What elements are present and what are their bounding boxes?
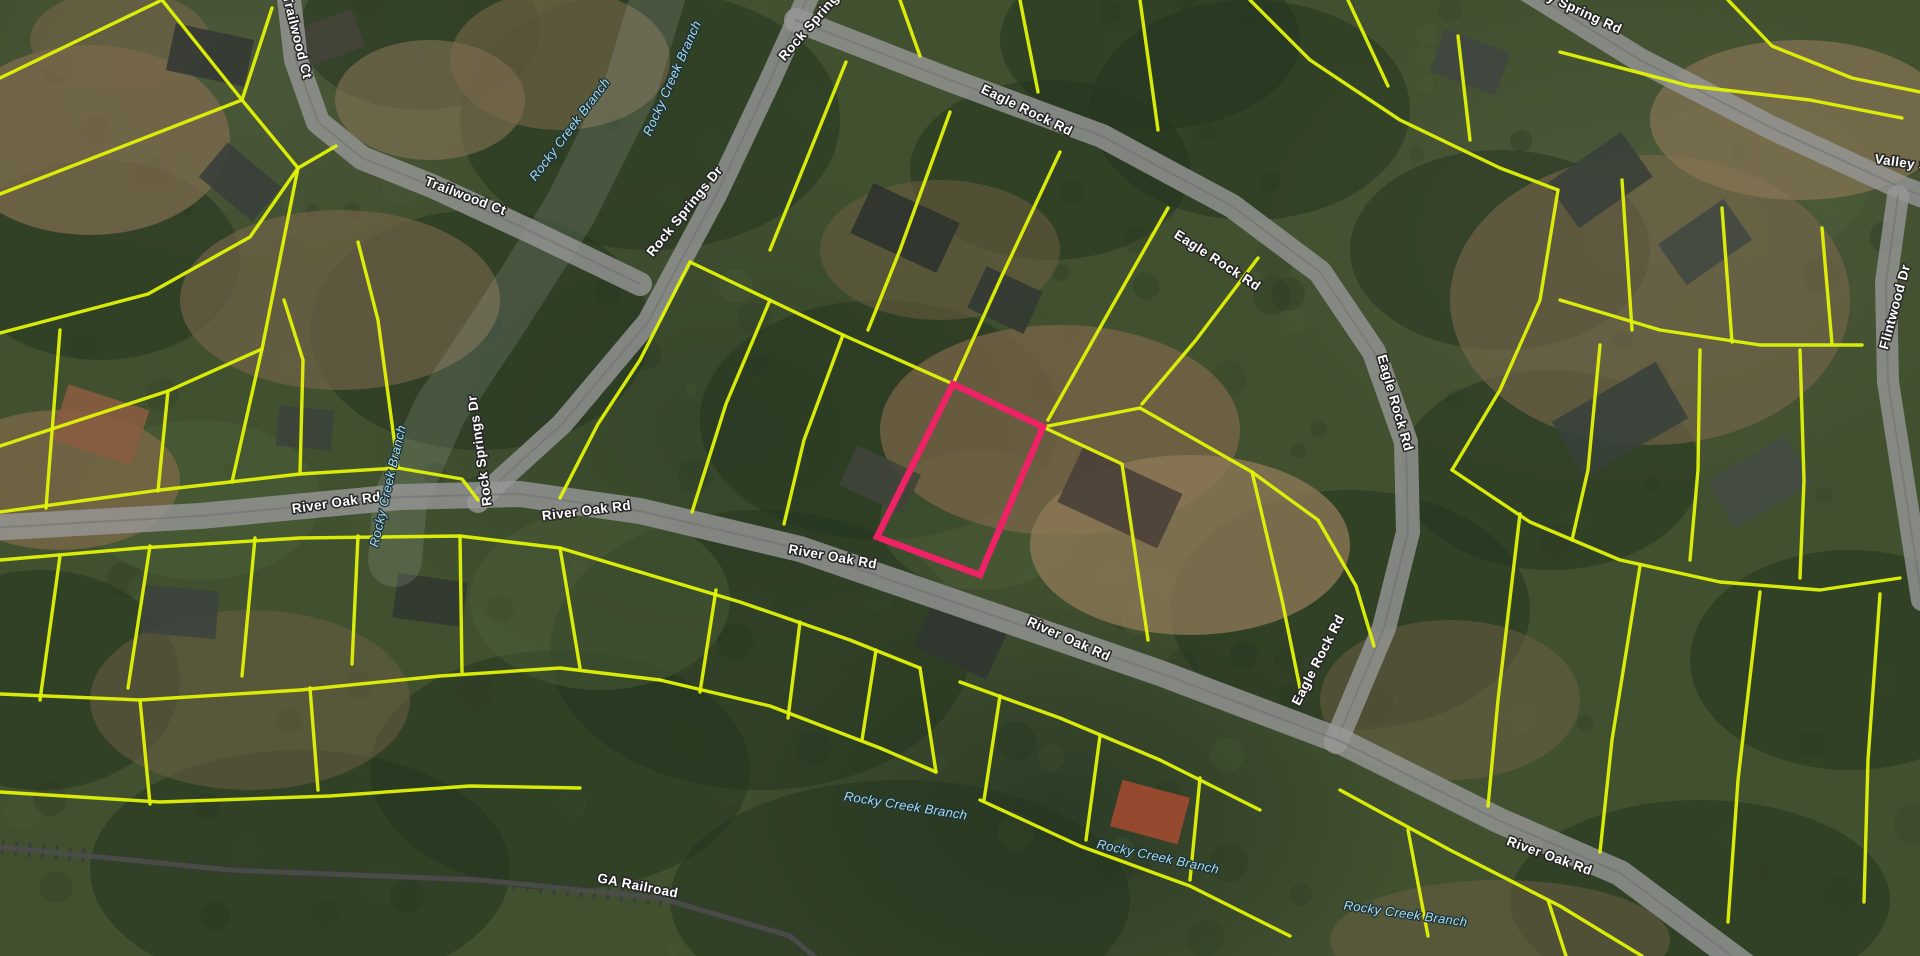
tree-texture-blob [1415, 24, 1436, 45]
tree-texture-blob [719, 269, 753, 303]
tree-texture-blob [1311, 421, 1328, 438]
tree-texture-blob [685, 383, 698, 396]
tree-texture-blob [1409, 146, 1425, 162]
tree-texture-blob [996, 721, 1036, 761]
parcel-map-svg: Trailwood CtTrailwood CtRock SpringRock … [0, 0, 1920, 956]
tree-texture-blob [1132, 272, 1159, 299]
tree-texture-blob [1290, 884, 1312, 906]
grass-patch [470, 510, 730, 690]
tree-texture-blob [1210, 738, 1244, 772]
house-roof [1429, 29, 1510, 95]
tree-texture-blob [1510, 130, 1532, 152]
parcel-boundary [1086, 736, 1100, 840]
house-roof [276, 406, 334, 451]
house-roof [1707, 436, 1812, 529]
parcel-boundary [460, 536, 462, 672]
tree-texture-blob [1291, 443, 1307, 459]
parcel-boundary [900, 0, 920, 56]
house-roof [141, 585, 220, 639]
forest-patch [370, 650, 750, 890]
tree-texture-blob [1577, 715, 1593, 731]
tree-texture-blob [40, 871, 73, 904]
map-canvas[interactable]: Trailwood CtTrailwood CtRock SpringRock … [0, 0, 1920, 956]
tree-texture-blob [1187, 919, 1225, 956]
tree-texture-blob [1038, 745, 1064, 771]
road-label: Eagle Rock Rd [1172, 227, 1264, 294]
parcel-boundary [298, 146, 336, 168]
tree-texture-blob [1893, 804, 1920, 844]
tree-texture-blob [1417, 76, 1433, 92]
tree-texture-blob [1438, 0, 1462, 21]
tree-texture-blob [1816, 487, 1833, 504]
tree-texture-blob [667, 943, 680, 956]
